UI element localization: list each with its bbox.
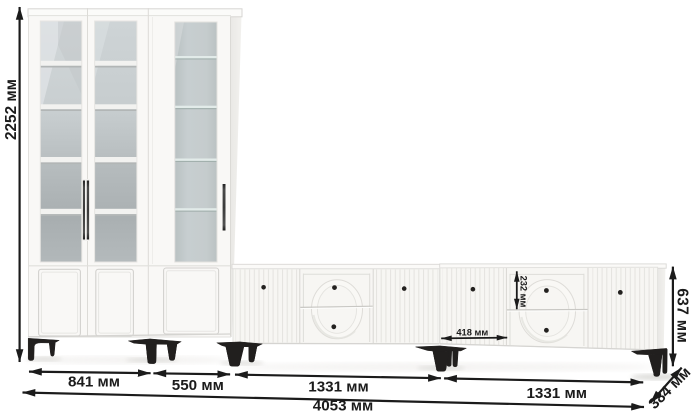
svg-text:841 мм: 841 мм (68, 374, 120, 391)
svg-text:1331 мм: 1331 мм (526, 385, 586, 402)
svg-text:418 мм: 418 мм (456, 327, 488, 337)
svg-text:4053 мм: 4053 мм (313, 398, 373, 415)
svg-text:232 мм: 232 мм (518, 276, 528, 308)
svg-text:1331 мм: 1331 мм (308, 379, 368, 396)
svg-text:2252 мм: 2252 мм (3, 79, 20, 140)
svg-text:637 мм: 637 мм (674, 288, 691, 343)
svg-text:550 мм: 550 мм (172, 377, 224, 394)
